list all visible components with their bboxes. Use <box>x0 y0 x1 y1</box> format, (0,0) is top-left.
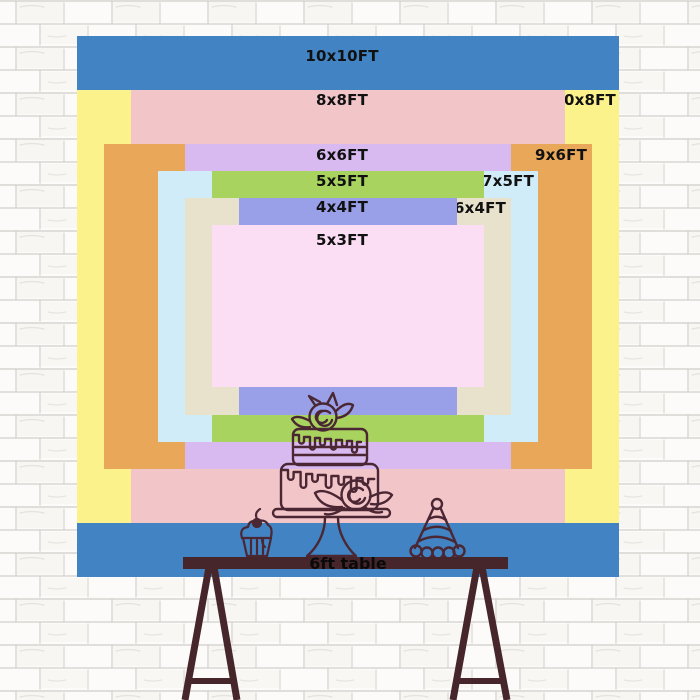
backdrop-size-chart: 10x10FT 10x8FT 8x8FT 9x6FT 6x6FT 7x5FT 5… <box>77 36 619 577</box>
size-rect-5x3ft: 5x3FT <box>212 225 484 387</box>
size-label-9x6ft: 9x6FT <box>535 148 587 163</box>
product-photo: 10x10FT 10x8FT 8x8FT 9x6FT 6x6FT 7x5FT 5… <box>0 0 700 700</box>
size-label-5x5ft: 5x5FT <box>200 174 484 189</box>
table-size-label: 6ft table <box>278 556 418 572</box>
size-label-5x3ft: 5x3FT <box>200 233 484 248</box>
size-label-8x8ft: 8x8FT <box>119 93 565 108</box>
size-label-10x10ft: 10x10FT <box>65 49 619 64</box>
size-label-7x5ft: 7x5FT <box>482 174 534 189</box>
size-label-6x6ft: 6x6FT <box>173 148 511 163</box>
size-label-4x4ft: 4x4FT <box>227 200 457 215</box>
size-label-6x4ft: 6x4FT <box>454 201 506 216</box>
